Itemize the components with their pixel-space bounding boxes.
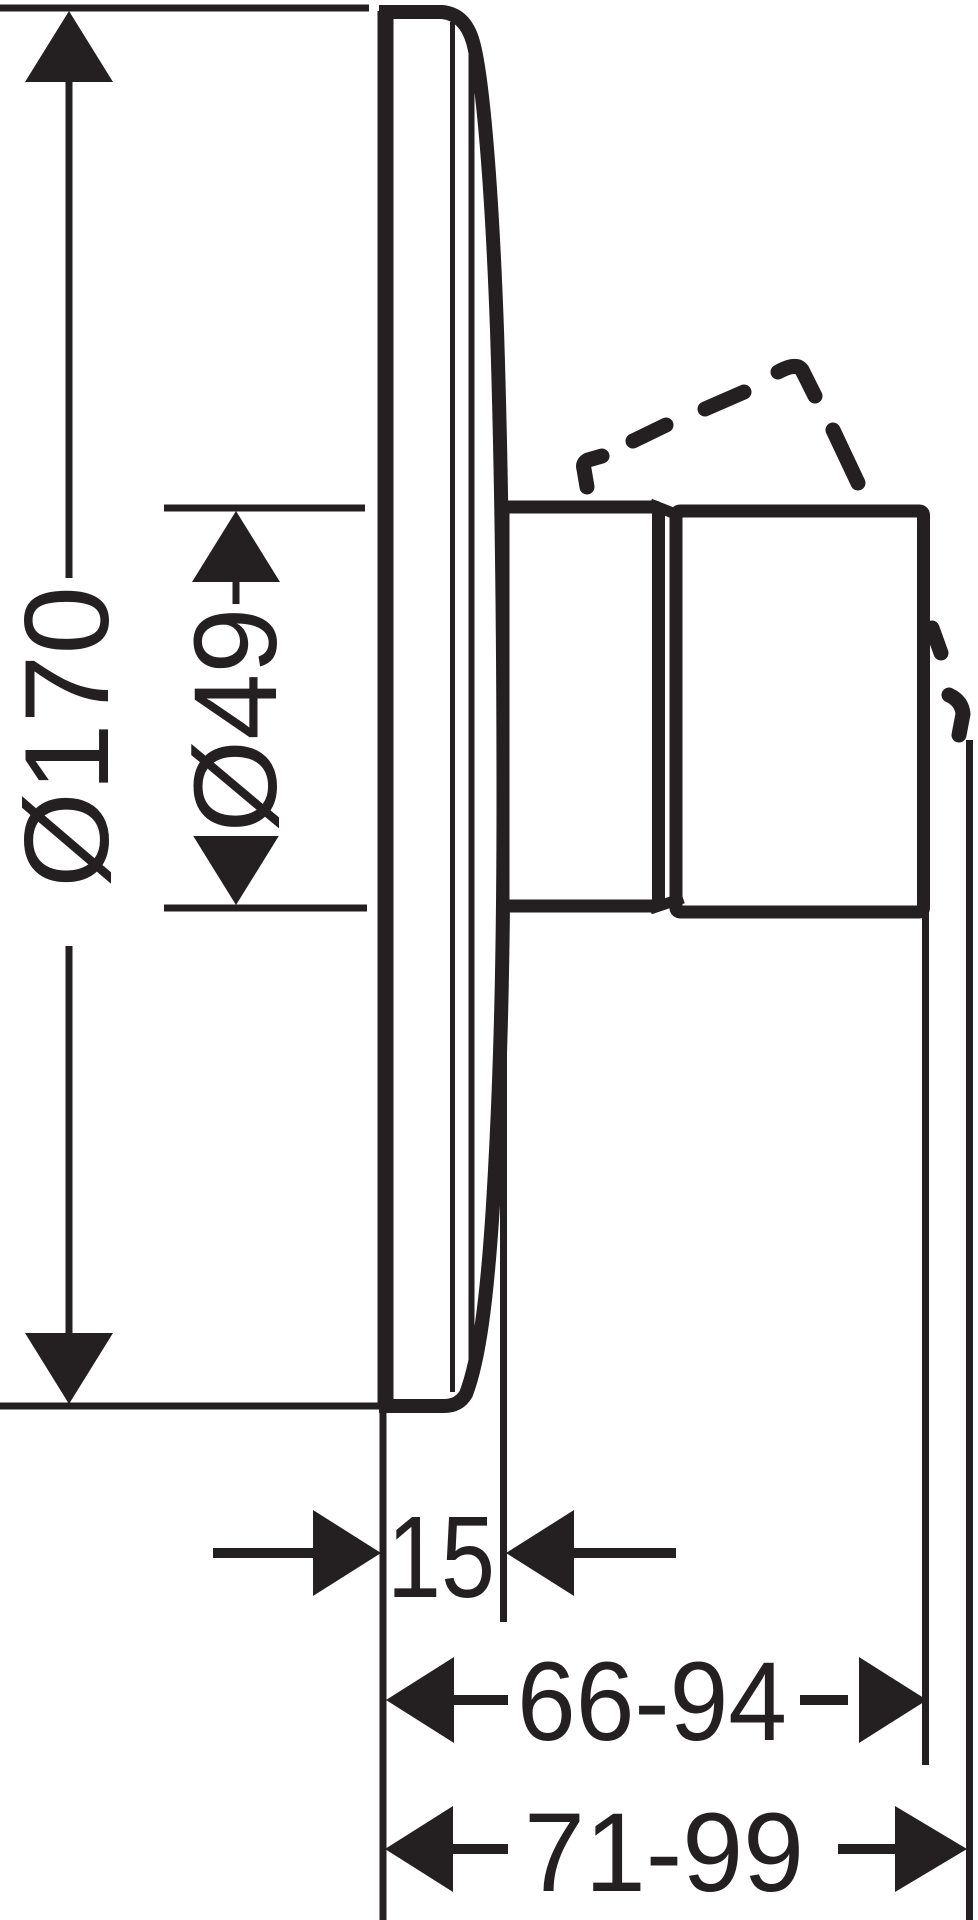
svg-text:66-94: 66-94 [517, 1639, 787, 1764]
svg-text:Ø49: Ø49 [170, 608, 302, 833]
svg-text:Ø170: Ø170 [0, 586, 134, 888]
svg-text:15: 15 [387, 1492, 495, 1622]
svg-text:71-99: 71-99 [524, 1790, 804, 1915]
